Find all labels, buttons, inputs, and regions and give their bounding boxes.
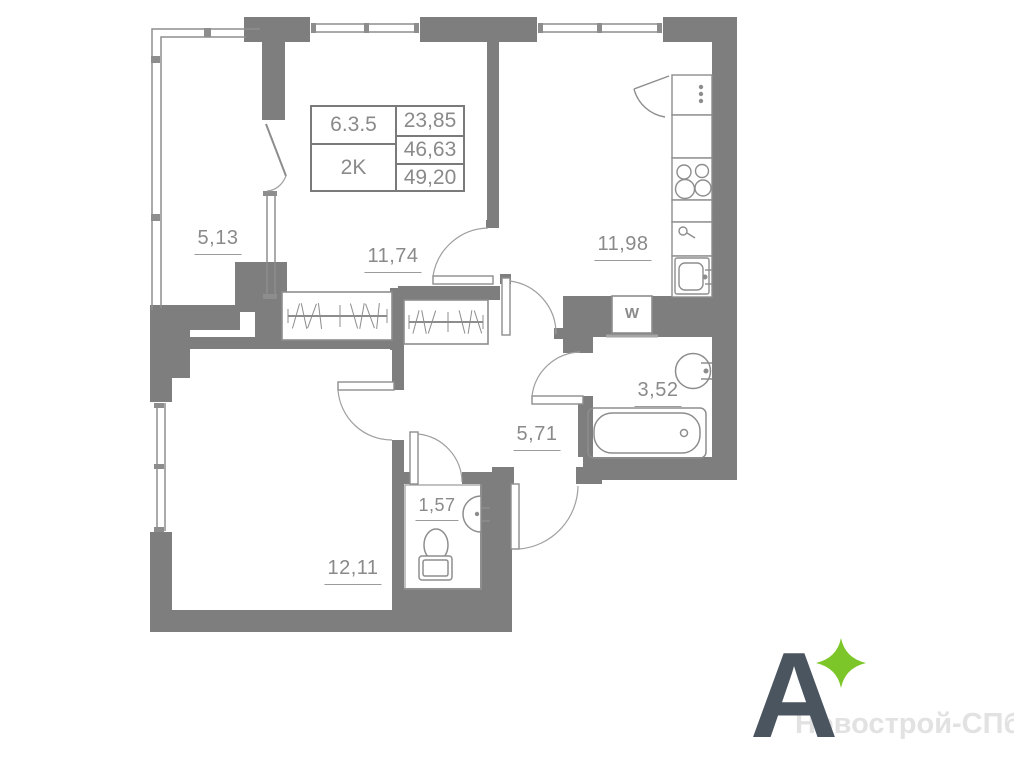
room-label-balcony: 5,13 (195, 227, 242, 255)
unit-info-box: 6.3.5 2K 23,85 46,63 49,20 (310, 105, 465, 192)
door-entrance (511, 484, 578, 549)
toilet (419, 529, 452, 580)
wardrobe-a (282, 292, 392, 340)
window-bedroom (150, 402, 172, 532)
door-balcony (266, 124, 286, 191)
kitchen-cabinet-1 (672, 75, 712, 115)
wall-bath-below-door (578, 396, 593, 457)
wall-right (712, 17, 737, 480)
window-living-room (310, 17, 420, 42)
wall-kitchen-divider (487, 17, 499, 226)
wall-wc-top-right (462, 472, 494, 484)
unit-info-right-column: 23,85 46,63 49,20 (397, 107, 463, 190)
wall-bedroom-right-lower (392, 440, 404, 612)
unit-type: 2K (312, 145, 395, 190)
room-label-hallway: 5,71 (514, 423, 561, 451)
wall-balcony-divider-top (262, 40, 285, 120)
wall-divider-cap (486, 220, 499, 228)
door-bathroom (532, 352, 583, 404)
wardrobe-b (404, 300, 488, 344)
unit-area-total: 49,20 (397, 165, 463, 190)
unit-area-living: 23,85 (397, 107, 463, 137)
room-label-kitchen: 11,98 (594, 233, 651, 261)
wall-top-b (420, 17, 537, 42)
unit-info-left-column: 6.3.5 2K (312, 107, 397, 190)
room-label-bathroom: 3,52 (635, 379, 682, 407)
unit-area-no-balcony: 46,63 (397, 137, 463, 165)
room-label-living-room: 11,74 (364, 245, 421, 273)
floor-plan-page: 5,13 11,74 11,98 3,52 5,71 1,57 12,11 W … (0, 0, 1014, 768)
kitchen-stove (672, 158, 712, 200)
wall-wardrobe-top (398, 286, 500, 300)
room-label-bedroom: 12,11 (324, 557, 381, 585)
wall-hall-bath-chunk (563, 296, 593, 353)
bathtub (588, 408, 706, 458)
kitchen-fridge (672, 115, 712, 158)
door-wc (410, 432, 462, 484)
wall-wc-right (480, 484, 500, 590)
room-label-wc: 1,57 (415, 495, 458, 521)
door-bedroom (338, 382, 394, 440)
unit-number: 6.3.5 (312, 107, 395, 145)
wardrobes (282, 292, 488, 344)
wall-hall-bottom-right (576, 467, 602, 484)
washing-machine-label: W (625, 305, 639, 322)
kitchen-cabinet-2 (672, 200, 712, 222)
wall-left-upper (150, 330, 172, 402)
door-kitchen-hall (502, 278, 556, 335)
wall-hall-bottom-left (492, 467, 514, 484)
kitchen-cabinet-3 (672, 222, 712, 256)
wall-left-lower (150, 532, 172, 614)
wall-bathroom-bottom (583, 457, 737, 480)
kitchen-units (634, 75, 712, 297)
kitchen-corner-door (634, 76, 669, 117)
logo-star-icon (812, 636, 868, 690)
door-living-room (433, 228, 493, 284)
window-kitchen (537, 17, 663, 42)
